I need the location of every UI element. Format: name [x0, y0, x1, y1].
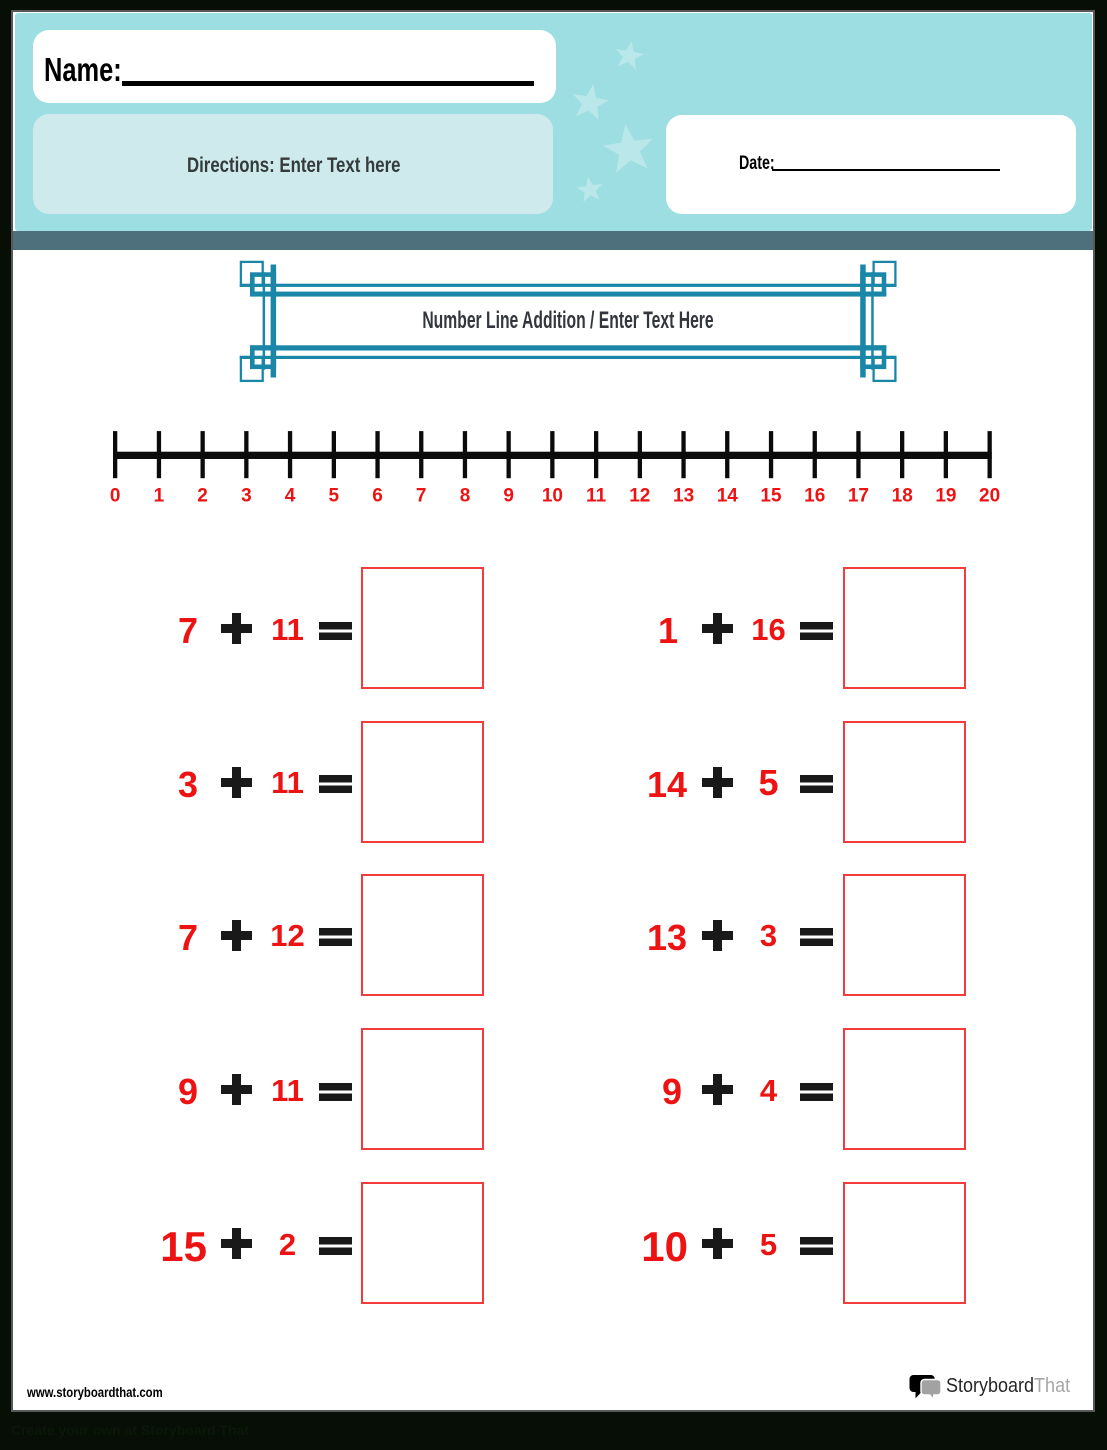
svg-text:17: 17 [848, 486, 869, 507]
svg-text:20: 20 [979, 486, 1000, 507]
svg-text:16: 16 [804, 486, 825, 507]
svg-text:12: 12 [629, 486, 650, 507]
svg-text:14: 14 [717, 486, 739, 507]
svg-text:10: 10 [542, 486, 563, 507]
svg-text:11: 11 [586, 486, 607, 507]
svg-text:4: 4 [285, 486, 296, 507]
svg-text:7: 7 [416, 486, 427, 507]
svg-text:3: 3 [241, 486, 252, 507]
svg-text:6: 6 [372, 486, 383, 507]
svg-text:9: 9 [503, 486, 514, 507]
svg-text:15: 15 [760, 486, 782, 507]
svg-text:0: 0 [110, 486, 121, 507]
svg-text:19: 19 [935, 486, 956, 507]
svg-text:2: 2 [197, 486, 208, 507]
svg-text:18: 18 [892, 486, 913, 507]
svg-text:13: 13 [673, 486, 694, 507]
svg-text:1: 1 [154, 486, 165, 507]
svg-text:5: 5 [329, 486, 340, 507]
svg-text:8: 8 [460, 486, 471, 507]
